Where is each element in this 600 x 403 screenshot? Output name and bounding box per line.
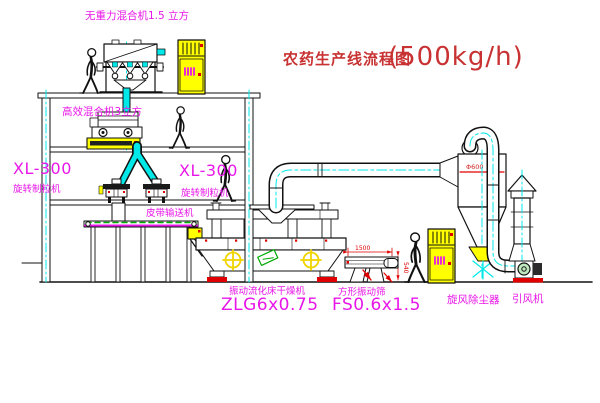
label-granulator-left-name: 旋转制粒机	[13, 185, 61, 195]
diagram-capacity: (500kg/h)	[388, 44, 524, 70]
induced-draft-fan	[513, 261, 543, 283]
label-floor2-mixer: 高效混合机3立方	[62, 107, 142, 118]
label-screen-model: FS0.6x1.5	[332, 297, 421, 314]
cyclone-dimension: Φ600	[466, 163, 484, 171]
granulator-detail	[99, 186, 103, 194]
vibrating-screen: 1500 540	[345, 245, 409, 282]
label-granulator-right-name: 旋转制粒机	[181, 189, 229, 199]
label-cyclone: 旋风除尘器	[447, 295, 500, 306]
label-granulator-right-model: XL-300	[179, 163, 238, 179]
label-granulator-left-model: XL-300	[13, 161, 72, 177]
building-column-right	[245, 90, 253, 282]
label-gravity-free-mixer: 无重力混合机1.5 立方	[85, 11, 189, 22]
screen-height-dim: 540	[402, 262, 409, 274]
label-dryer-model: ZLG6x0.75	[221, 297, 319, 314]
screen-width-dim: 1500	[355, 245, 370, 252]
exhaust-duct	[250, 163, 452, 223]
control-cabinet-ground	[428, 229, 455, 283]
label-belt-conveyor: 皮带输送机	[146, 209, 194, 219]
person-figure	[169, 107, 189, 148]
label-fan: 引风机	[512, 294, 544, 305]
person-figure	[405, 233, 429, 282]
cad-flow-diagram: Φ600 1500 540	[0, 0, 600, 403]
control-cabinet-roof	[178, 40, 205, 94]
granulator-right	[143, 179, 170, 203]
